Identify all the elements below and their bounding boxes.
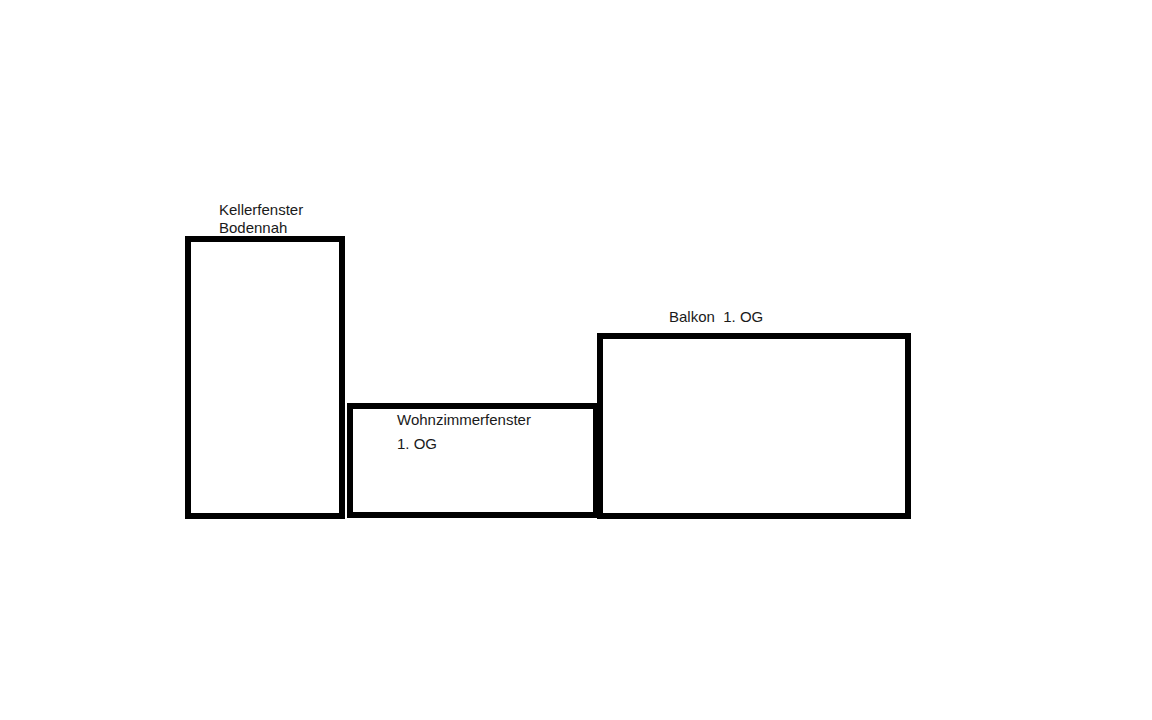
drawing-canvas: Kellerfenster Bodennah Wohnzimmerfenster… — [0, 0, 1152, 720]
kellerfenster-label-line2: Bodennah — [219, 219, 287, 237]
wohnzimmerfenster-label-line1: Wohnzimmerfenster — [397, 411, 531, 429]
kellerfenster-box — [185, 236, 345, 519]
balkon-label: Balkon 1. OG — [669, 308, 763, 326]
balkon-box — [597, 333, 911, 519]
kellerfenster-label-line1: Kellerfenster — [219, 201, 303, 219]
wohnzimmerfenster-label-line2: 1. OG — [397, 435, 437, 453]
